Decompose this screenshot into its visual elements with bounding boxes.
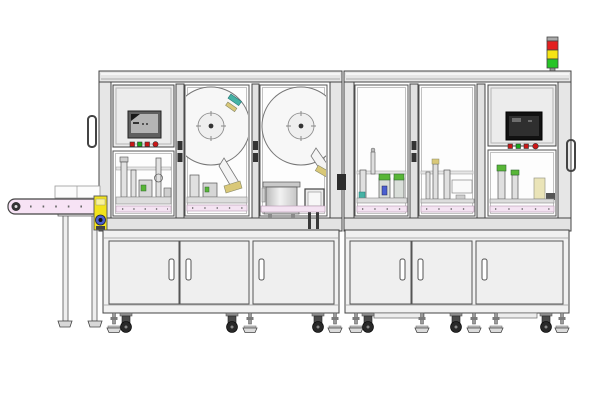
frame-post: [558, 82, 571, 230]
pneumatic-cylinder: [498, 170, 505, 199]
window-right-2: [419, 85, 475, 216]
side-door-handle-left: [88, 116, 96, 147]
pneumatic-cylinder: [512, 175, 518, 199]
frame-post: [410, 84, 418, 218]
leveling-foot: [349, 313, 363, 333]
top-rail-right: [344, 71, 571, 82]
leveling-foot: [467, 313, 481, 333]
base-cabinet-right: [345, 230, 569, 313]
door-handle-slot: [482, 259, 487, 280]
door-hinge: [253, 141, 258, 150]
bowl-feeder: [263, 182, 300, 218]
door-handle-slot: [400, 259, 405, 280]
tower-light-green: [547, 59, 558, 68]
station-base: [490, 199, 554, 203]
conveyor-drive: [94, 196, 107, 230]
door-handle-slot: [418, 259, 423, 280]
door-hinge: [253, 153, 258, 162]
tower-light-yellow: [547, 50, 558, 59]
frame-post: [477, 84, 485, 218]
window-reel-2: [260, 85, 340, 229]
table-sill-left: [99, 218, 342, 231]
hmi-button-red: [145, 142, 150, 147]
door-hinge: [178, 141, 183, 150]
frame-post: [344, 82, 354, 230]
station-base: [421, 199, 474, 203]
door-hinge: [412, 153, 417, 162]
conveyor-foot: [88, 321, 102, 327]
frame-post: [176, 84, 184, 218]
hmi-button-green: [138, 142, 143, 147]
window-right-3: [488, 150, 556, 216]
leveling-foot: [328, 313, 342, 333]
window-left-0: [113, 151, 174, 216]
machine-module-right: [337, 71, 571, 231]
caster-wheel: [450, 313, 462, 333]
door-hinge: [178, 153, 183, 162]
door-handle-slot: [259, 259, 264, 280]
window-right-1: [355, 85, 408, 216]
frame-post: [330, 82, 342, 230]
hmi-button-red: [508, 144, 513, 149]
pneumatic-cylinder: [131, 170, 136, 197]
station-base: [116, 197, 171, 204]
outfeed-conveyor: [8, 186, 107, 327]
station-base: [357, 198, 407, 203]
gripper-part: [141, 185, 146, 191]
hmi-panel-right: [488, 85, 556, 149]
leveling-foot: [243, 313, 257, 333]
gripper-unit: [394, 178, 404, 198]
top-rail-left: [99, 71, 342, 82]
machine-feet: [107, 313, 569, 333]
table-sill-right: [344, 218, 571, 231]
cabinet-door: [253, 241, 334, 304]
hmi-button-red: [130, 142, 135, 147]
base-cabinet-left: [103, 230, 339, 313]
station-base: [187, 197, 247, 203]
frame-post: [252, 84, 259, 218]
conveyor-leg: [63, 213, 68, 321]
leveling-foot: [107, 313, 121, 333]
tower-light-red: [547, 41, 558, 50]
signal-tower: [547, 37, 558, 72]
hmi-button-green: [516, 144, 521, 149]
leveling-foot: [555, 313, 569, 333]
door-lock: [337, 174, 346, 190]
conveyor-guard: [55, 186, 100, 198]
door-handle-slot: [186, 259, 191, 280]
conveyor-foot: [58, 321, 72, 327]
tower-cap: [547, 37, 558, 41]
pneumatic-cylinder: [444, 170, 450, 199]
sub-frame: [374, 313, 424, 318]
hmi-button-red: [524, 144, 529, 149]
caster-wheel: [540, 313, 552, 333]
cabinet-door: [476, 241, 563, 304]
door-hinge: [412, 141, 417, 150]
bowl-flange: [263, 182, 300, 187]
hmi-panel-left: [113, 85, 174, 147]
caster-wheel: [362, 313, 374, 333]
hmi-button-estop: [153, 142, 158, 147]
machine-module-left: [99, 71, 342, 231]
work-strip: [261, 206, 325, 212]
work-strip: [421, 206, 474, 212]
machine-drawing: [0, 0, 600, 400]
caster-wheel: [120, 313, 132, 333]
machine-illustration: [0, 0, 600, 400]
caster-wheel: [312, 313, 324, 333]
door-handle-slot: [169, 259, 174, 280]
caster-wheel: [226, 313, 238, 333]
hmi-button-estop: [533, 143, 539, 149]
work-strip: [116, 206, 171, 212]
pneumatic-cylinder: [121, 162, 127, 197]
sub-frame: [497, 313, 537, 318]
